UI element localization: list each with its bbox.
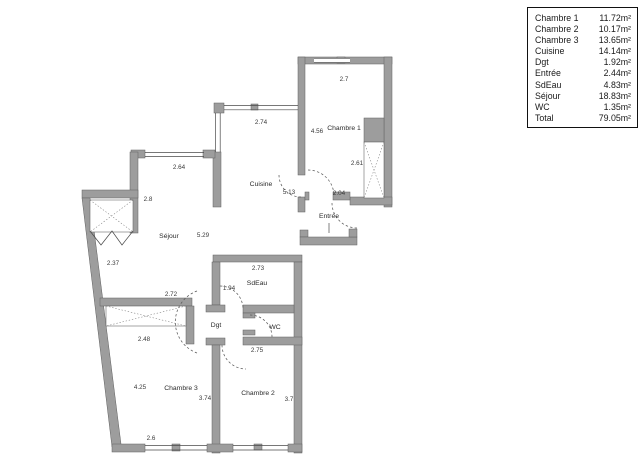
legend-row: Total 79.05m²: [535, 113, 631, 124]
room-label-entree: Entrée: [319, 213, 339, 220]
legend-row: Séjour 18.83m²: [535, 91, 631, 102]
legend-room-area: 2.44m²: [604, 68, 631, 79]
legend-room-name: SdEau: [535, 80, 561, 91]
legend-room-name: Séjour: [535, 91, 560, 102]
room-label-wc: WC: [269, 324, 280, 331]
dim-cuisine-height: 5.13: [283, 189, 296, 196]
room-label-sdeau: SdEau: [247, 280, 268, 287]
legend-room-area: 1.35m²: [604, 102, 631, 113]
room-label-chambre1: Chambre 1: [327, 125, 361, 132]
bay-window-sill: [90, 231, 133, 245]
legend-row: Chambre 2 10.17m²: [535, 24, 631, 35]
legend-row: Chambre 3 13.65m²: [535, 35, 631, 46]
legend-row: SdEau 4.83m²: [535, 80, 631, 91]
legend-row: Chambre 1 11.72m²: [535, 13, 631, 24]
legend-room-name: Total: [535, 113, 554, 124]
floor-plan-page: Chambre 1 Cuisine Séjour Entrée SdEau Dg…: [0, 0, 640, 467]
legend-row: WC 1.35m²: [535, 102, 631, 113]
legend-room-name: Cuisine: [535, 46, 564, 57]
dim-wc-bottom: 2.75: [251, 347, 264, 354]
legend-row: Dgt 1.92m²: [535, 57, 631, 68]
chambre1-door-arc: [308, 170, 334, 196]
legend-room-area: 13.65m²: [599, 35, 631, 46]
dim-sdeau-top: 2.73: [252, 265, 265, 272]
legend-room-name: WC: [535, 102, 550, 113]
legend-room-name: Chambre 3: [535, 35, 579, 46]
legend-room-area: 10.17m²: [599, 24, 631, 35]
room-label-dgt: Dgt: [211, 322, 222, 329]
legend-room-name: Chambre 2: [535, 24, 579, 35]
walls: [82, 57, 392, 453]
room-label-chambre3: Chambre 3: [164, 385, 198, 392]
chambre2-door-arc: [222, 345, 246, 369]
dim-c1-top: 2.7: [340, 76, 349, 83]
legend-room-area: 14.14m²: [599, 46, 631, 57]
dim-sejour-diag: 2.37: [107, 260, 120, 267]
room-label-cuisine: Cuisine: [250, 181, 273, 188]
dim-c3-left: 4.25: [134, 384, 147, 391]
legend-row: Entrée 2.44m²: [535, 68, 631, 79]
chambre3-window-box: [106, 306, 186, 326]
legend-room-name: Chambre 1: [535, 13, 579, 24]
dim-sejour-top: 2.64: [173, 164, 186, 171]
dim-c2-right: 3.7: [285, 396, 294, 403]
legend-room-name: Dgt: [535, 57, 549, 68]
dim-c1-bottom: 2.04: [333, 190, 346, 197]
dim-c3-window: 2.48: [138, 336, 151, 343]
dim-c3-right: 3.74: [199, 395, 212, 402]
dim-c1-left: 4.56: [311, 128, 324, 135]
legend-room-area: 4.83m²: [604, 80, 631, 91]
dim-cuisine-top: 2.74: [255, 119, 268, 126]
dim-sejour-left: 2.8: [144, 196, 153, 203]
dim-c3-bottom: 2.6: [147, 435, 156, 442]
room-label-sejour: Séjour: [159, 233, 179, 240]
legend-row: Cuisine 14.14m²: [535, 46, 631, 57]
dim-c3-top: 2.72: [165, 291, 178, 298]
area-legend: Chambre 1 11.72m² Chambre 2 10.17m² Cham…: [527, 7, 638, 128]
legend-room-name: Entrée: [535, 68, 561, 79]
dim-dgt-height: 1.94: [223, 285, 236, 292]
dim-sejour-width: 5.29: [197, 232, 210, 239]
dim-c1-right: 2.61: [351, 160, 364, 167]
legend-room-area: 18.83m²: [599, 91, 631, 102]
legend-room-area: 1.92m²: [604, 57, 631, 68]
legend-room-area: 79.05m²: [599, 113, 631, 124]
legend-room-area: 11.72m²: [599, 13, 631, 24]
room-label-chambre2: Chambre 2: [241, 390, 275, 397]
